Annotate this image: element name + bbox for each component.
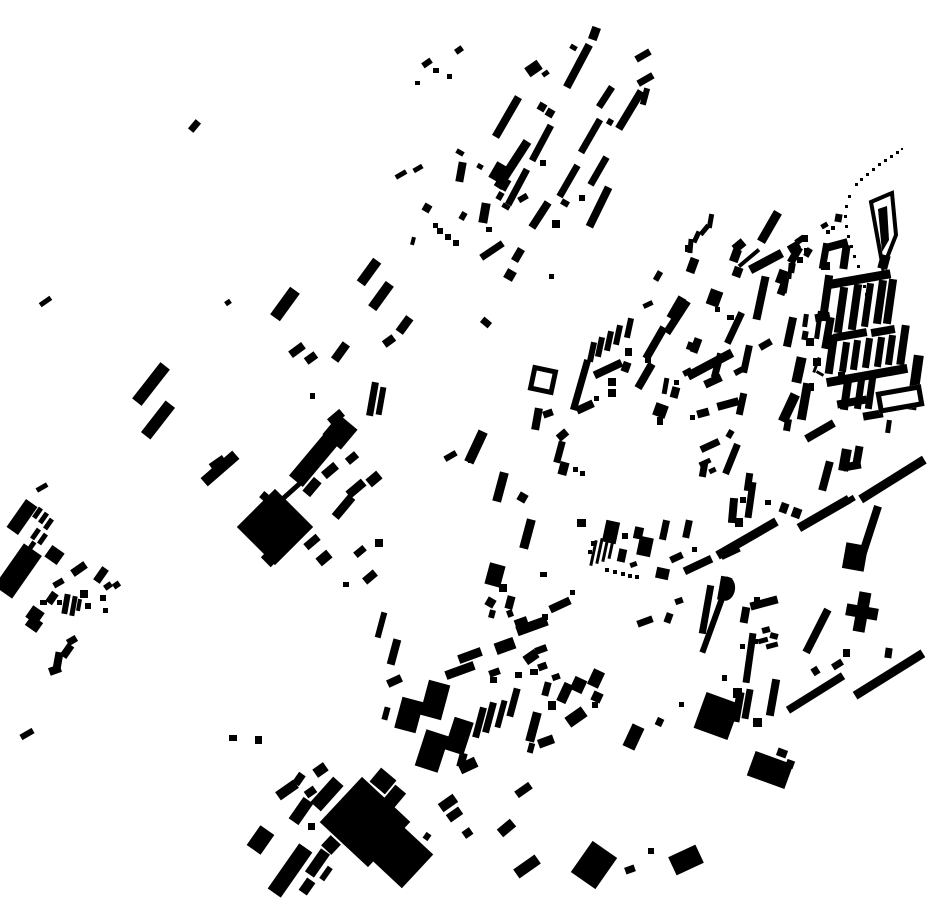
building-footprint xyxy=(542,408,554,418)
building-footprint xyxy=(504,595,515,610)
building-footprint xyxy=(503,268,517,282)
building-footprint xyxy=(299,877,316,895)
building-footprint xyxy=(839,245,850,270)
building-footprint xyxy=(747,751,793,789)
building-footprint xyxy=(412,163,423,172)
building-footprint xyxy=(636,615,653,627)
building-footprint xyxy=(654,717,664,727)
building-footprint xyxy=(648,848,654,854)
building-footprint xyxy=(514,782,533,798)
building-footprint xyxy=(820,221,829,229)
building-footprint xyxy=(594,396,599,401)
map-dot xyxy=(884,159,887,162)
building-footprint xyxy=(80,590,88,598)
building-footprint xyxy=(785,672,844,713)
building-footprint xyxy=(525,711,541,742)
building-footprint xyxy=(593,359,624,379)
building-footprint xyxy=(93,566,109,584)
building-footprint xyxy=(615,89,645,131)
building-footprint xyxy=(864,377,875,410)
building-footprint xyxy=(515,672,522,678)
building-footprint xyxy=(255,736,262,744)
building-footprint xyxy=(843,649,850,657)
building-footprint xyxy=(545,108,556,119)
building-footprint xyxy=(488,667,501,677)
building-footprint xyxy=(896,325,909,366)
building-footprint xyxy=(519,518,535,549)
building-footprint xyxy=(321,461,339,478)
map-dot xyxy=(845,225,848,228)
building-footprint xyxy=(36,482,49,492)
map-dot xyxy=(855,183,858,186)
building-footprint xyxy=(410,237,416,246)
building-footprint xyxy=(270,287,300,322)
building-footprint xyxy=(669,551,684,563)
building-footprint xyxy=(540,572,547,577)
building-footprint xyxy=(415,81,420,85)
building-footprint xyxy=(315,550,332,567)
building-footprint xyxy=(394,697,424,734)
building-footprint xyxy=(548,701,556,710)
building-footprint xyxy=(362,569,378,584)
building-footprint xyxy=(76,599,82,612)
building-footprint xyxy=(103,581,113,591)
building-footprint xyxy=(524,59,543,77)
building-footprint xyxy=(484,596,496,608)
building-footprint xyxy=(636,535,654,556)
building-footprint xyxy=(420,680,451,720)
building-footprint xyxy=(661,378,669,395)
building-courtyard-outline xyxy=(875,384,924,414)
building-footprint xyxy=(622,533,628,539)
building-footprint xyxy=(492,471,508,502)
building-footprint xyxy=(625,348,632,356)
building-footprint xyxy=(506,687,520,717)
building-footprint xyxy=(132,362,170,406)
building-footprint xyxy=(731,266,743,278)
building-footprint xyxy=(826,230,830,234)
building-footprint xyxy=(873,337,884,368)
building-footprint xyxy=(569,43,578,51)
building-footprint xyxy=(797,495,852,532)
building-footprint xyxy=(842,542,868,571)
building-footprint xyxy=(884,335,895,366)
building-footprint xyxy=(690,415,695,420)
building-footprint xyxy=(766,641,779,649)
building-footprint xyxy=(629,560,637,567)
building-footprint xyxy=(735,518,743,527)
building-footprint xyxy=(884,648,892,659)
building-footprint xyxy=(437,228,443,234)
building-footprint xyxy=(861,338,872,369)
map-dot xyxy=(628,574,632,578)
map-dot xyxy=(850,245,853,248)
building-footprint xyxy=(564,706,587,727)
building-footprint xyxy=(357,258,382,287)
building-footprint xyxy=(70,561,88,577)
building-footprint xyxy=(758,636,769,643)
building-footprint xyxy=(653,270,663,282)
building-footprint xyxy=(40,600,47,605)
building-footprint xyxy=(622,723,644,750)
building-footprint xyxy=(345,451,359,465)
building-footprint xyxy=(288,342,306,358)
building-footprint xyxy=(685,245,692,252)
building-footprint xyxy=(657,417,663,425)
building-footprint xyxy=(742,633,756,683)
building-footprint xyxy=(541,681,551,696)
building-footprint xyxy=(785,340,789,346)
building-footprint xyxy=(663,612,673,624)
building-footprint xyxy=(573,467,578,472)
building-footprint xyxy=(540,160,546,166)
building-footprint xyxy=(499,584,507,592)
building-footprint xyxy=(696,408,710,419)
building-footprint xyxy=(821,262,830,270)
building-footprint xyxy=(443,450,457,462)
building-footprint xyxy=(382,334,396,348)
building-footprint xyxy=(577,118,602,154)
building-footprint xyxy=(319,865,333,881)
building-footprint xyxy=(421,58,433,69)
building-footprint xyxy=(753,276,770,321)
building-footprint xyxy=(224,298,232,306)
building-footprint xyxy=(715,307,720,312)
building-footprint xyxy=(621,361,632,373)
building-footprint xyxy=(395,315,413,335)
building-footprint xyxy=(495,191,504,201)
building-footprint xyxy=(758,338,773,351)
building-footprint xyxy=(642,300,653,309)
building-footprint xyxy=(553,440,565,463)
building-footprint xyxy=(776,748,788,759)
building-footprint xyxy=(860,283,873,328)
building-footprint xyxy=(527,742,535,753)
building-footprint xyxy=(453,240,459,246)
building-courtyard-outline xyxy=(528,365,559,396)
building-footprint xyxy=(537,734,555,748)
building-footprint xyxy=(381,706,390,720)
building-footprint xyxy=(809,383,814,391)
building-footprint xyxy=(810,666,820,676)
building-footprint xyxy=(852,445,863,464)
building-footprint xyxy=(617,548,628,562)
map-dot xyxy=(635,575,639,579)
building-footprint xyxy=(57,600,62,605)
building-footprint xyxy=(668,845,704,876)
building-footprint xyxy=(802,313,809,327)
building-footprint xyxy=(52,578,65,589)
building-footprint xyxy=(375,539,383,547)
building-footprint xyxy=(303,534,320,550)
building-footprint xyxy=(468,459,472,463)
map-dot xyxy=(872,168,875,171)
map-dot xyxy=(878,163,881,166)
building-footprint xyxy=(375,612,388,639)
wedge-inner-bar xyxy=(878,206,889,252)
building-footprint xyxy=(608,389,616,397)
building-footprint xyxy=(476,162,484,169)
map-dot xyxy=(860,178,863,181)
building-footprint xyxy=(445,234,451,240)
building-footprint xyxy=(636,72,654,87)
map-dot xyxy=(863,285,866,288)
building-footprint xyxy=(804,248,809,253)
building-footprint xyxy=(529,124,554,163)
building-footprint xyxy=(722,675,727,681)
building-footprint xyxy=(517,193,529,203)
building-footprint xyxy=(686,348,734,379)
map-dot xyxy=(613,570,617,574)
building-footprint xyxy=(44,545,64,565)
building-footprint xyxy=(353,544,367,557)
map-dot xyxy=(845,205,848,208)
building-footprint xyxy=(783,418,792,431)
building-footprint xyxy=(729,247,742,262)
building-footprint xyxy=(541,69,550,77)
map-dot xyxy=(866,173,869,176)
building-footprint xyxy=(679,702,684,707)
building-footprint xyxy=(790,507,802,519)
building-footprint xyxy=(794,235,806,246)
building-footprint xyxy=(246,825,274,854)
building-footprint xyxy=(830,658,843,670)
building-footprint xyxy=(488,609,496,618)
building-footprint xyxy=(643,325,668,360)
building-footprint xyxy=(551,673,561,681)
building-footprint xyxy=(478,202,490,223)
building-footprint xyxy=(570,590,575,595)
building-footprint xyxy=(624,318,634,339)
building-footprint xyxy=(761,626,770,634)
building-footprint xyxy=(281,479,304,500)
building-footprint xyxy=(753,718,762,727)
building-footprint xyxy=(387,638,401,665)
map-dot xyxy=(848,195,851,198)
building-footprint xyxy=(534,644,548,655)
building-footprint xyxy=(834,287,848,334)
building-footprint xyxy=(858,455,926,502)
building-footprint xyxy=(705,288,723,307)
building-footprint xyxy=(229,735,237,741)
building-footprint xyxy=(579,195,585,201)
building-footprint xyxy=(447,74,452,79)
building-footprint xyxy=(645,358,651,363)
building-footprint xyxy=(312,762,328,778)
building-footprint xyxy=(757,210,782,244)
building-footprint xyxy=(592,702,598,708)
building-footprint xyxy=(513,854,541,878)
building-footprint xyxy=(692,547,697,552)
building-footprint xyxy=(490,677,497,683)
building-footprint xyxy=(608,378,616,386)
map-dot xyxy=(853,255,856,258)
building-footprint xyxy=(587,155,609,186)
building-footprint xyxy=(542,614,548,620)
building-footprint xyxy=(19,728,34,740)
building-footprint xyxy=(368,281,394,311)
building-footprint xyxy=(588,25,601,40)
building-footprint xyxy=(454,45,464,55)
building-footprint xyxy=(187,119,200,133)
building-footprint xyxy=(804,420,836,443)
building-footprint xyxy=(458,211,467,221)
building-footprint xyxy=(722,443,740,475)
building-footprint xyxy=(422,203,433,214)
building-footprint xyxy=(606,118,614,126)
building-footprint xyxy=(779,276,790,293)
building-footprint xyxy=(577,519,586,527)
building-footprint xyxy=(803,608,832,654)
building-footprint xyxy=(634,48,651,62)
building-footprint xyxy=(415,729,450,773)
building-footprint xyxy=(765,500,771,505)
building-footprint xyxy=(85,603,91,609)
building-footprint xyxy=(613,325,623,346)
building-footprint xyxy=(725,429,734,439)
map-dot xyxy=(860,275,863,278)
building-footprint xyxy=(548,597,571,614)
building-footprint xyxy=(779,502,790,514)
building-footprint xyxy=(685,256,699,273)
building-footprint xyxy=(0,543,42,598)
building-footprint xyxy=(48,664,62,676)
building-footprint xyxy=(831,226,835,230)
building-footprint xyxy=(674,597,684,605)
building-footprint xyxy=(479,240,504,260)
building-footprint xyxy=(496,819,515,838)
building-footprint xyxy=(885,419,892,433)
building-footprint xyxy=(310,393,315,399)
building-footprint xyxy=(141,401,175,440)
building-footprint xyxy=(494,637,517,655)
building-footprint xyxy=(654,566,669,579)
building-footprint xyxy=(670,386,681,399)
building-footprint xyxy=(103,608,108,613)
building-footprint xyxy=(111,581,120,590)
building-footprint xyxy=(674,380,679,385)
building-footprint xyxy=(652,402,669,419)
building-footprint xyxy=(289,797,314,825)
building-footprint xyxy=(838,342,849,373)
building-footprint xyxy=(766,678,780,716)
map-dot xyxy=(890,155,893,158)
map-dot xyxy=(896,151,899,154)
building-footprint xyxy=(531,407,543,430)
building-footprint xyxy=(455,148,464,156)
building-footprint xyxy=(516,491,528,503)
building-footprint xyxy=(740,644,745,649)
building-footprint xyxy=(461,827,473,839)
building-footprint xyxy=(588,550,592,554)
building-footprint xyxy=(635,362,656,390)
building-footprint xyxy=(38,295,52,307)
building-footprint xyxy=(330,341,349,362)
building-footprint xyxy=(838,372,845,380)
building-footprint xyxy=(740,497,746,503)
building-footprint xyxy=(818,460,833,491)
building-footprint xyxy=(791,356,806,384)
building-footprint xyxy=(100,595,106,601)
building-footprint xyxy=(530,669,538,675)
building-footprint xyxy=(563,43,593,89)
figure-ground-map xyxy=(0,0,930,924)
building-footprint xyxy=(433,68,439,73)
building-footprint xyxy=(556,682,574,704)
building-footprint xyxy=(304,351,318,365)
building-footprint xyxy=(345,478,366,498)
building-footprint xyxy=(699,438,720,453)
building-footprint xyxy=(556,164,580,199)
building-footprint xyxy=(845,603,879,620)
building-footprint xyxy=(571,841,617,889)
building-footprint xyxy=(486,227,492,232)
building-footprint xyxy=(308,823,315,830)
building-rounded-end xyxy=(717,576,737,602)
building-footprint xyxy=(537,661,548,671)
building-footprint xyxy=(596,85,615,109)
building-footprint xyxy=(587,668,605,688)
building-footprint xyxy=(552,220,560,228)
building-footprint xyxy=(740,345,753,374)
building-footprint xyxy=(834,213,842,222)
building-footprint xyxy=(624,864,636,874)
map-dot xyxy=(901,148,903,150)
map-dot xyxy=(847,235,850,238)
building-footprint xyxy=(586,185,612,228)
building-footprint xyxy=(560,198,570,207)
map-dot xyxy=(621,572,625,576)
building-footprint xyxy=(877,254,890,270)
wedge-building-outline xyxy=(0,0,930,924)
map-dot xyxy=(605,568,609,572)
map-dot xyxy=(844,215,847,218)
building-footprint xyxy=(682,519,693,538)
building-footprint xyxy=(735,393,746,416)
building-footprint xyxy=(769,632,778,640)
building-footprint xyxy=(727,315,734,320)
building-footprint xyxy=(365,471,382,488)
building-footprint xyxy=(658,519,669,540)
building-footprint xyxy=(849,340,860,371)
building-footprint xyxy=(423,831,432,840)
building-footprint xyxy=(683,555,714,575)
building-footprint xyxy=(690,337,703,354)
building-footprint xyxy=(511,247,525,263)
building-footprint xyxy=(386,674,403,688)
map-dot xyxy=(865,293,868,296)
building-footprint xyxy=(555,428,569,441)
building-footprint xyxy=(455,161,466,182)
building-footprint xyxy=(444,717,474,756)
building-footprint xyxy=(754,597,760,603)
building-footprint xyxy=(708,466,716,473)
map-dot xyxy=(857,265,860,268)
building-footprint xyxy=(816,370,824,377)
building-footprint xyxy=(343,582,349,587)
building-footprint xyxy=(492,95,522,139)
building-footprint xyxy=(549,274,554,279)
building-footprint xyxy=(506,609,514,618)
building-footprint xyxy=(848,284,862,331)
building-footprint xyxy=(480,316,492,328)
building-footprint xyxy=(591,541,596,546)
building-footprint xyxy=(433,223,438,228)
building-footprint xyxy=(395,169,408,179)
building-footprint xyxy=(580,471,585,476)
building-footprint xyxy=(740,606,751,623)
building-footprint xyxy=(528,200,551,230)
